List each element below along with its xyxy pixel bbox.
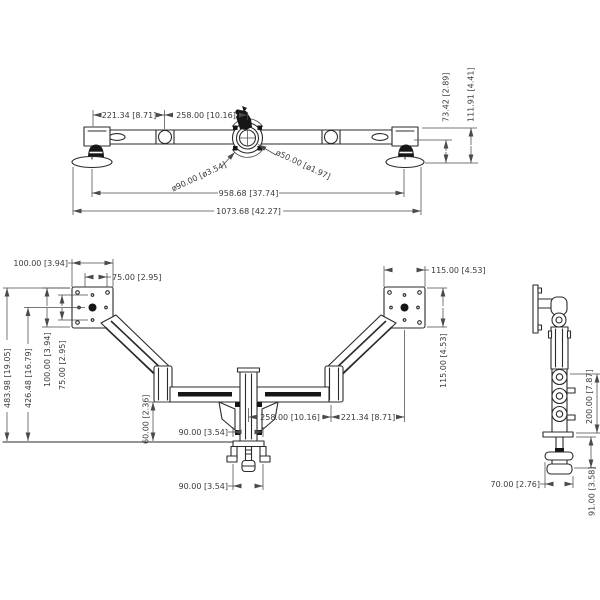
dim-label-front-left-holes-h: 75.00 [2.95] <box>58 341 67 391</box>
dim-label-front-clamp-top-w: 90.00 [3.54] <box>179 428 229 437</box>
lower-arm-left <box>170 387 240 402</box>
dim-label-front-right-plate-h: 115.00 [4.53] <box>439 333 448 388</box>
lower-arm-right <box>257 387 329 402</box>
elbow-left <box>154 366 172 402</box>
elbow-pivot-right <box>325 131 338 144</box>
dim-label-front-arm-h: 426.48 [16.79] <box>24 348 33 408</box>
side-pole <box>552 369 575 437</box>
desk-clamp <box>3 441 270 472</box>
side-adjust-handle-upper <box>567 388 575 393</box>
dim-label-side-under-h: 91.00 [3.58] <box>588 467 597 517</box>
dim-label-front-left-holes-w: 75.00 [2.95] <box>112 273 162 282</box>
dim-label-top-seg-left: 221.34 [8.71] <box>102 111 157 120</box>
dim-label-top-height-total: 111.91 [4.41] <box>467 67 476 122</box>
dim-front-seg-mid: 258.00 [10.16] <box>249 405 332 422</box>
front-view: 100.00 [3.94] 75.00 [2.95] 100.00 [3.94]… <box>3 259 486 491</box>
side-view: 200.00 [7.87] 70.00 [2.76] 91.00 [3.58] <box>491 285 600 516</box>
side-desk-clamp <box>543 432 573 474</box>
side-clamp-disc-upper <box>545 452 573 460</box>
dim-label-top-height-arm: 73.42 [2.89] <box>442 73 451 123</box>
dim-label-side-pole-h: 200.00 [7.87] <box>585 369 594 424</box>
dim-label-front-seg-outer: 221.34 [8.71] <box>341 413 396 422</box>
technical-drawing-page: 221.34 [8.71] 258.00 [10.16] ø90.00 [ø3.… <box>0 0 600 600</box>
plate-center-hole-right <box>401 304 409 312</box>
side-head-assembly <box>538 297 567 327</box>
mount-head-right <box>386 127 424 168</box>
dim-front-right-plate-h: 115.00 [4.53] <box>427 288 448 388</box>
clamp-top-plate <box>233 441 264 447</box>
dim-top-dia-outer: ø90.00 [ø3.54] <box>170 152 235 193</box>
dim-front-left-plate-w: 100.00 [3.94] <box>13 259 113 287</box>
dim-top-span-inner: 958.68 [37.74] <box>92 169 404 198</box>
dim-top-dia-inner: ø50.00 [ø1.97] <box>258 145 332 182</box>
dim-label-front-seg-mid: 258.00 [10.16] <box>260 413 320 422</box>
dim-label-top-span-outer: 1073.68 [42.27] <box>216 207 281 216</box>
dim-label-front-right-plate-w: 115.00 [4.53] <box>431 266 486 275</box>
dim-label-top-seg-mid: 258.00 [10.16] <box>176 111 236 120</box>
elbow-pivot-left <box>159 131 172 144</box>
dim-side-pole-h: 200.00 [7.87] <box>570 369 600 433</box>
dim-label-front-left-plate-h: 100.00 [3.94] <box>43 332 52 387</box>
plate-center-hole-left <box>89 304 97 312</box>
side-adjust-handle-lower <box>567 415 575 420</box>
dim-front-right-plate-w: 115.00 [4.53] <box>384 266 486 287</box>
dimension-drawing-canvas: 221.34 [8.71] 258.00 [10.16] ø90.00 [ø3.… <box>0 0 600 600</box>
dim-side-under-h: 91.00 [3.58] <box>574 437 597 516</box>
dim-label-front-left-plate-w: 100.00 [3.94] <box>13 259 68 268</box>
top-view: 221.34 [8.71] 258.00 [10.16] ø90.00 [ø3.… <box>72 67 478 215</box>
dim-label-top-dia-inner: ø50.00 [ø1.97] <box>274 148 332 181</box>
dim-top-seg-left: 221.34 [8.71] <box>93 110 165 129</box>
dim-label-side-foot-w: 70.00 [2.76] <box>491 480 541 489</box>
support-wedge-left <box>219 402 235 430</box>
dim-label-top-span-inner: 958.68 [37.74] <box>219 189 279 198</box>
side-clamp-disc-lower <box>547 464 572 474</box>
mount-head-left <box>72 127 112 168</box>
side-vesa-plate <box>533 285 542 333</box>
dim-label-front-clamp-bot-w: 90.00 [3.54] <box>179 482 229 491</box>
dim-top-seg-mid: 258.00 [10.16] <box>165 111 248 120</box>
dim-label-front-desk-range: 60.00 [2.36] <box>142 395 151 445</box>
dim-front-desk-range: 60.00 [2.36] <box>142 395 169 445</box>
dim-front-left-holes-w: 75.00 [2.95] <box>85 273 162 287</box>
side-upper-arm <box>549 327 571 369</box>
dim-label-front-total-h: 483.98 [19.05] <box>3 348 12 408</box>
